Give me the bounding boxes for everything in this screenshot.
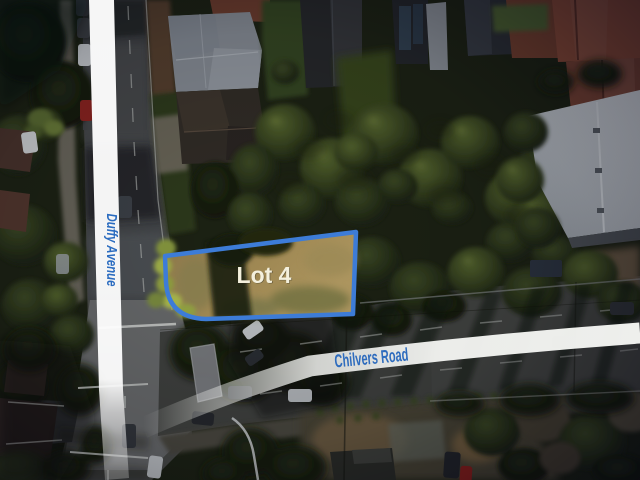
svg-text:Lot 4: Lot 4 xyxy=(237,262,292,288)
svg-text:Duffy Avenue: Duffy Avenue xyxy=(103,214,119,287)
